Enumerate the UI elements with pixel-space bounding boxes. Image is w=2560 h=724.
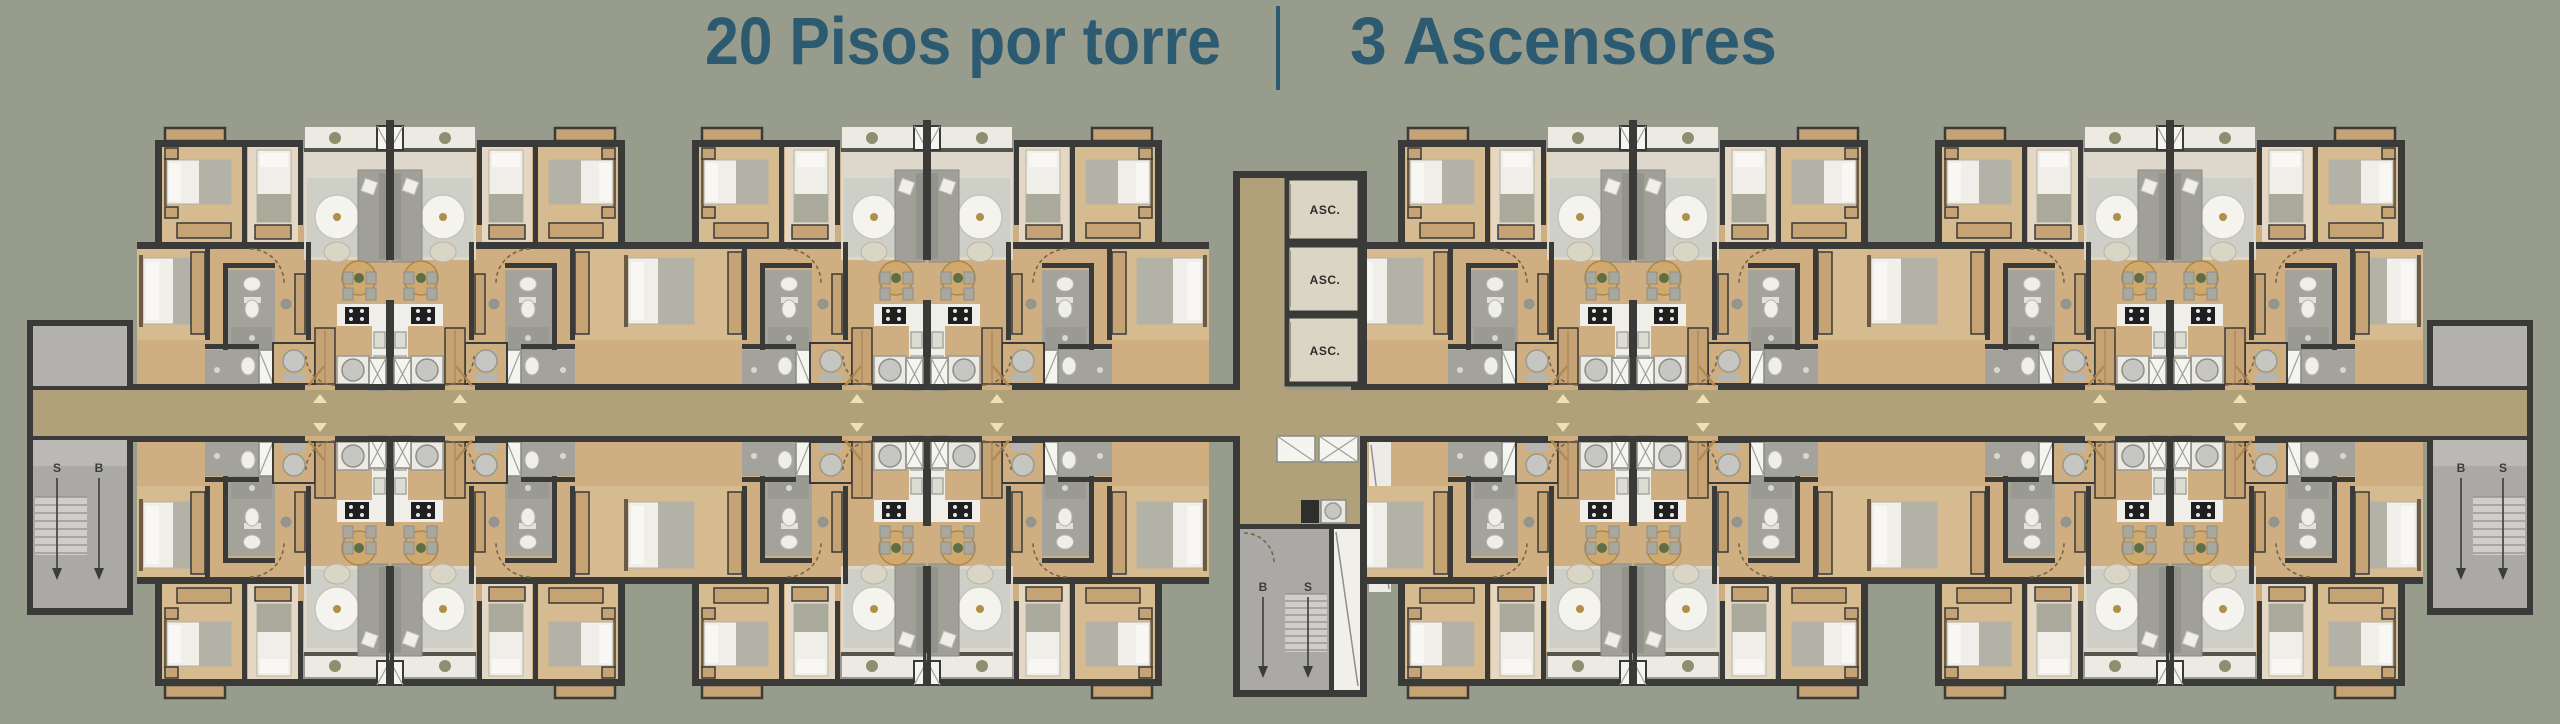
- svg-text:20 Pisos por torre: 20 Pisos por torre: [705, 4, 1221, 79]
- svg-text:B: B: [2457, 461, 2466, 475]
- svg-text:S: S: [53, 461, 61, 475]
- svg-text:3 Ascensores: 3 Ascensores: [1350, 4, 1777, 79]
- svg-text:ASC.: ASC.: [1310, 273, 1341, 287]
- svg-text:S: S: [1304, 580, 1312, 594]
- svg-text:ASC.: ASC.: [1310, 203, 1341, 217]
- svg-text:ASC.: ASC.: [1310, 344, 1341, 358]
- svg-text:B: B: [1259, 580, 1268, 594]
- svg-text:B: B: [95, 461, 104, 475]
- svg-text:S: S: [2499, 461, 2507, 475]
